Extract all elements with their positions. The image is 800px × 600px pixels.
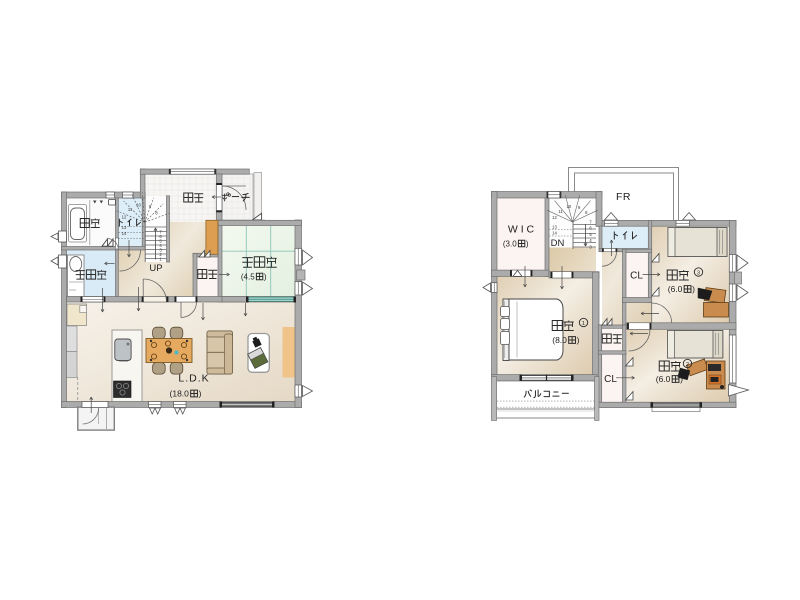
svg-text:(6.0: (6.0: [668, 284, 683, 294]
svg-text:11: 11: [558, 209, 563, 214]
svg-text:(6.0: (6.0: [656, 374, 671, 384]
svg-text:): ): [577, 335, 580, 345]
svg-text:10: 10: [136, 203, 141, 208]
svg-text:1: 1: [582, 321, 585, 327]
svg-text:11: 11: [128, 207, 133, 212]
svg-text:DN: DN: [551, 238, 565, 249]
svg-text:FR: FR: [616, 191, 631, 203]
svg-text:): ): [526, 240, 529, 249]
svg-text:): ): [692, 284, 695, 294]
svg-text:L.D.K: L.D.K: [178, 373, 209, 385]
svg-text:(4.5: (4.5: [241, 273, 255, 282]
svg-text:14: 14: [552, 231, 557, 236]
svg-text:(3.0: (3.0: [503, 240, 517, 249]
svg-text:): ): [199, 389, 202, 399]
svg-text:(8.0: (8.0: [552, 335, 567, 345]
svg-text:12: 12: [122, 215, 127, 220]
svg-text:2: 2: [686, 362, 689, 368]
svg-text:): ): [264, 273, 267, 282]
svg-text:14: 14: [122, 231, 127, 236]
svg-text:13: 13: [552, 225, 557, 230]
svg-text:(18.0: (18.0: [170, 389, 190, 399]
svg-text:UP: UP: [149, 263, 162, 274]
svg-text:CL: CL: [630, 271, 643, 282]
svg-text:3: 3: [697, 270, 700, 276]
svg-text:13: 13: [122, 225, 127, 230]
svg-text:10: 10: [566, 204, 571, 209]
svg-text:12: 12: [552, 215, 557, 220]
svg-text:): ): [680, 374, 683, 384]
svg-text:CL: CL: [604, 374, 617, 385]
svg-text:W I C: W I C: [508, 224, 535, 236]
